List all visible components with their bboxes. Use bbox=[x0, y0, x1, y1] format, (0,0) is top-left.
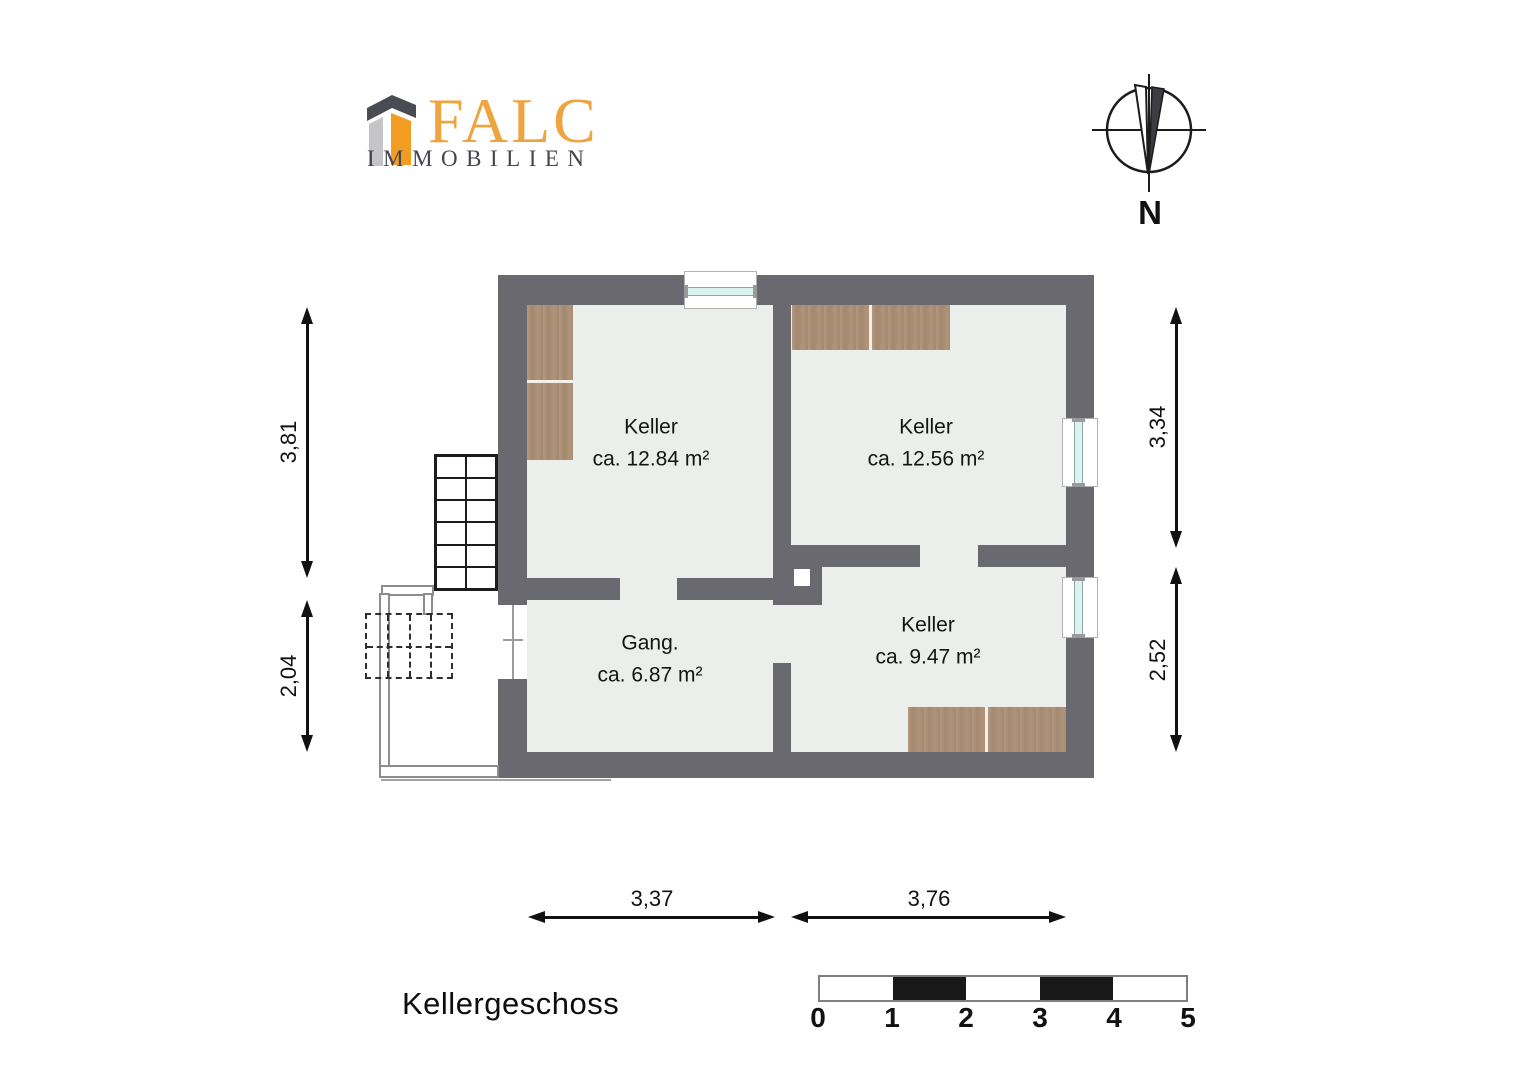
wall-outer-right bbox=[1066, 275, 1094, 778]
dim-arrow-left-lower bbox=[306, 612, 309, 740]
room-area: ca. 9.47 m² bbox=[875, 641, 980, 673]
door-threshold-tick bbox=[503, 639, 523, 641]
dim-arrow-left-upper bbox=[306, 320, 309, 565]
room-area: ca. 12.84 m² bbox=[593, 443, 710, 475]
chimney-flue bbox=[794, 569, 810, 586]
dim-arrowhead bbox=[1170, 531, 1182, 548]
scale-label-2: 2 bbox=[958, 1002, 974, 1034]
dim-arrowhead bbox=[758, 911, 775, 923]
scale-segment bbox=[1113, 977, 1186, 1000]
dim-label-bottom-left: 3,37 bbox=[631, 886, 674, 912]
floorplan-page: FALC IMMOBILIEN N bbox=[0, 0, 1528, 1080]
room-name: Keller bbox=[593, 412, 710, 444]
terrace-edge-line bbox=[381, 779, 611, 781]
exterior-stairs bbox=[434, 454, 498, 591]
dim-arrowhead bbox=[301, 735, 313, 752]
scale-segment bbox=[1040, 977, 1113, 1000]
door-threshold-line bbox=[512, 605, 514, 679]
window-cap bbox=[1072, 483, 1085, 487]
scale-segment bbox=[966, 977, 1039, 1000]
dim-arrowhead bbox=[1049, 911, 1066, 923]
window-cap bbox=[1072, 418, 1085, 422]
wall-outer-left-lower bbox=[498, 679, 527, 778]
floorplan-title: Kellergeschoss bbox=[402, 986, 619, 1022]
scale-label-1: 1 bbox=[884, 1002, 900, 1034]
dashed-stair-line bbox=[367, 646, 451, 648]
dim-label-bottom-right: 3,76 bbox=[908, 886, 951, 912]
dim-label-right-upper: 3,34 bbox=[1145, 406, 1171, 449]
scale-label-3: 3 bbox=[1032, 1002, 1048, 1034]
scale-label-5: 5 bbox=[1180, 1002, 1196, 1034]
room-name: Keller bbox=[875, 610, 980, 642]
compass-icon bbox=[1086, 66, 1214, 194]
window-cap bbox=[753, 285, 757, 298]
dim-arrowhead bbox=[1170, 735, 1182, 752]
wall-center-vertical-lower bbox=[773, 663, 791, 752]
north-label: N bbox=[1128, 194, 1172, 232]
room-label-gang: Gang. ca. 6.87 m² bbox=[597, 628, 702, 691]
scale-segment bbox=[893, 977, 966, 1000]
bench-split bbox=[985, 707, 988, 752]
wardrobe-split bbox=[527, 380, 573, 383]
scale-label-4: 4 bbox=[1106, 1002, 1122, 1034]
wardrobe-split bbox=[869, 305, 872, 350]
dim-arrowhead bbox=[301, 561, 313, 578]
wall-keller-divider-a bbox=[791, 545, 920, 567]
window-cap bbox=[1072, 634, 1085, 638]
wall-keller-divider-b bbox=[978, 545, 1066, 567]
dim-label-left-lower: 2,04 bbox=[276, 655, 302, 698]
wall-gang-north-b bbox=[677, 578, 773, 600]
room-area: ca. 6.87 m² bbox=[597, 659, 702, 691]
room-name: Keller bbox=[868, 412, 985, 444]
window-cap bbox=[1072, 577, 1085, 581]
scale-label-0: 0 bbox=[810, 1002, 826, 1034]
wall-outer-top bbox=[498, 275, 1094, 305]
dim-arrow-bottom-right bbox=[804, 916, 1053, 919]
room-area: ca. 12.56 m² bbox=[868, 443, 985, 475]
dim-label-right-lower: 2,52 bbox=[1145, 639, 1171, 682]
stair-parapet-bottom bbox=[379, 765, 499, 778]
dim-arrow-right-upper bbox=[1175, 320, 1178, 535]
window-cap bbox=[684, 285, 688, 298]
dim-arrow-right-lower bbox=[1175, 579, 1178, 739]
window-east-upper-glass bbox=[1074, 421, 1083, 484]
wall-gang-north-a bbox=[527, 578, 620, 600]
room-name: Gang. bbox=[597, 628, 702, 660]
wall-outer-left-upper bbox=[498, 275, 527, 605]
logo-subtitle: IMMOBILIEN bbox=[367, 146, 593, 172]
room-label-keller-se: Keller ca. 9.47 m² bbox=[875, 610, 980, 673]
scale-segment bbox=[820, 977, 893, 1000]
scale-bar bbox=[818, 975, 1188, 1002]
dim-label-left-upper: 3,81 bbox=[276, 421, 302, 464]
wall-center-vertical-upper bbox=[773, 305, 791, 605]
room-label-keller-nw: Keller ca. 12.84 m² bbox=[593, 412, 710, 475]
window-north-glass bbox=[687, 287, 754, 296]
room-label-keller-ne: Keller ca. 12.56 m² bbox=[868, 412, 985, 475]
dim-arrow-bottom-left bbox=[541, 916, 762, 919]
stair-parapet-return bbox=[423, 593, 433, 615]
wall-outer-bottom bbox=[498, 752, 1094, 778]
window-east-lower-glass bbox=[1074, 580, 1083, 635]
